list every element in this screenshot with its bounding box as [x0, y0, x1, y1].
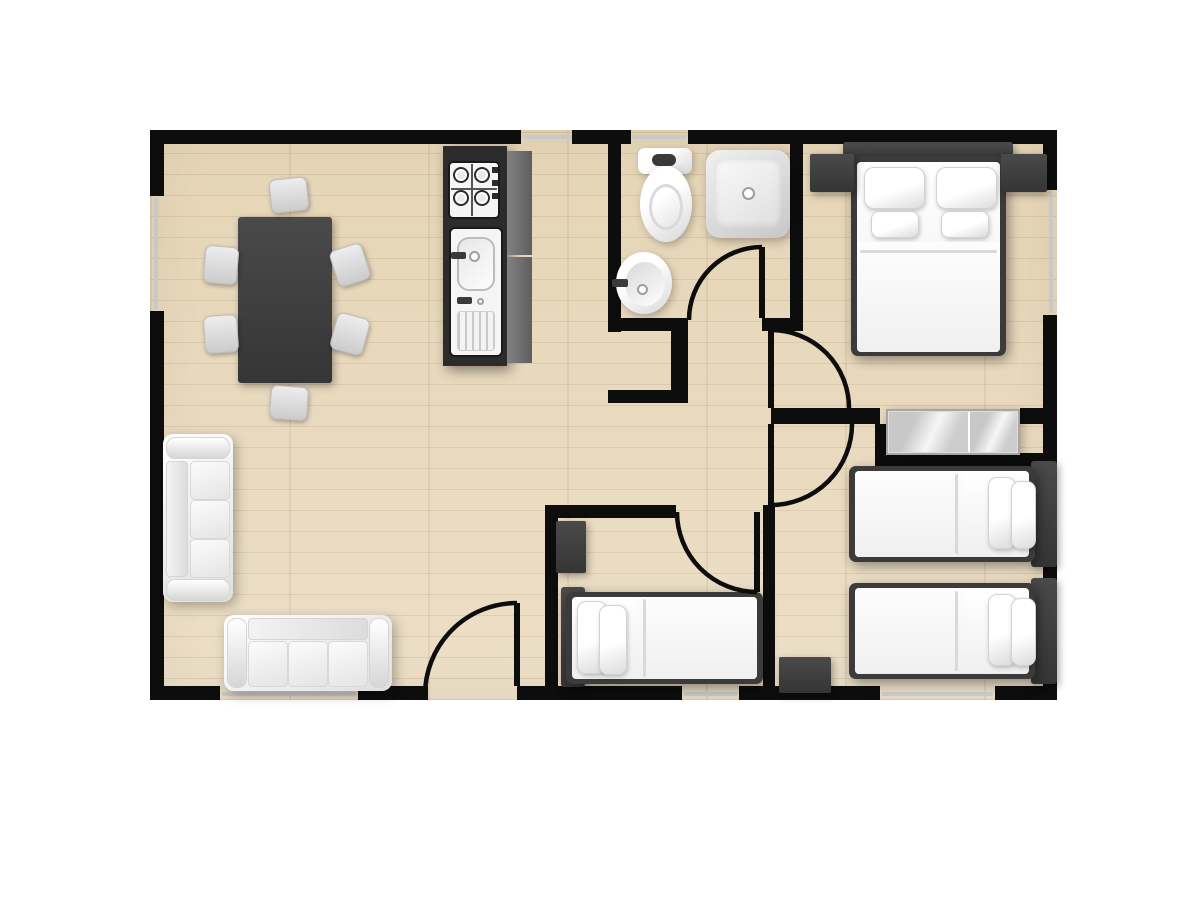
entrance-door-arc [425, 603, 517, 695]
master-bedroom-door-arc [771, 330, 849, 408]
bedroom2-door-arc [771, 424, 852, 505]
floor-plan [0, 0, 1200, 900]
bathroom-door-arc [689, 247, 762, 320]
door-swing-arcs [0, 0, 1200, 900]
bedroom3-door-arc [677, 512, 757, 592]
